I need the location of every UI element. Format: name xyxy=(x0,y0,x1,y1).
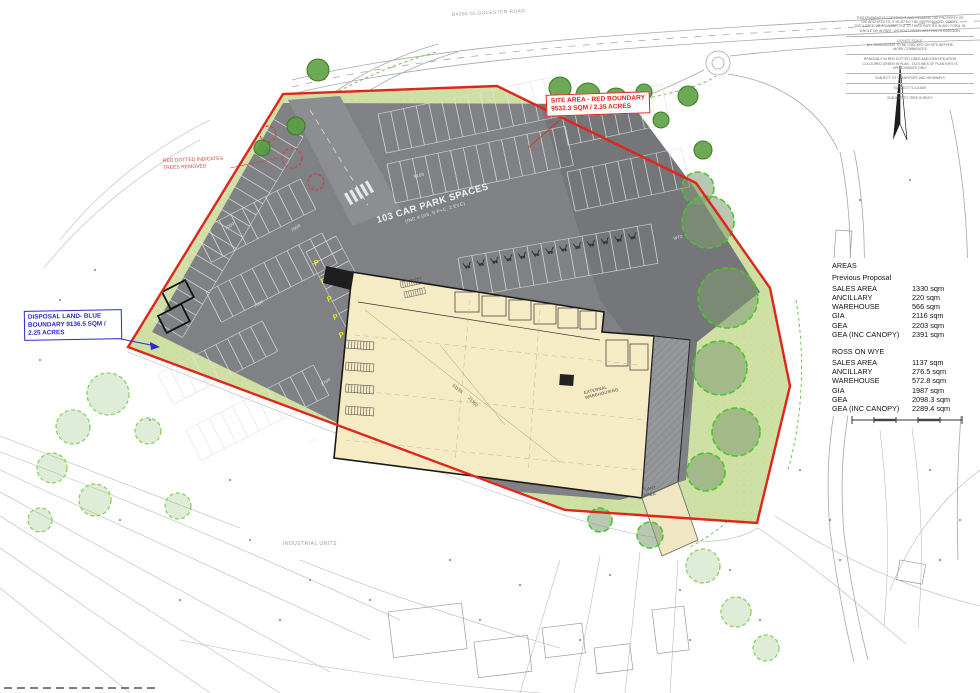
areas-section-heading: Previous Proposal xyxy=(832,273,974,282)
scale-bar xyxy=(852,416,962,424)
areas-title: AREAS xyxy=(832,261,974,270)
site-plan-sheet: P P P P P P 7000 7000 7000 2700 6100 700… xyxy=(0,0,980,693)
table-row: SALES AREA1137 sqm xyxy=(832,358,974,367)
note-group: DO NOT SCALEALL DIMENSIONS TO BE CHECKED… xyxy=(846,37,974,56)
table-row: ANCILLARY220 sqm xyxy=(832,293,974,302)
industrial-units-label: INDUSTRIAL UNITS xyxy=(283,541,337,547)
disposal-land-annotation: DISPOSAL LAND- BLUE BOUNDARY 9136.5 SQM … xyxy=(24,309,123,341)
table-row: GEA (INC CANOPY)2289.4 sqm xyxy=(832,404,974,413)
areas-schedule: AREAS Previous Proposal SALES AREA1330 s… xyxy=(828,258,978,416)
disposal-line3: 2.25 ACRES xyxy=(28,328,118,338)
table-row: GEA (INC CANOPY)2391 sqm xyxy=(832,330,974,339)
table-row: WAREHOUSE566 sqm xyxy=(832,302,974,311)
table-row: GIA2116 sqm xyxy=(832,311,974,320)
plant-area-label: PLANT AREA xyxy=(641,485,657,498)
note-group: THIS DRAWING IS COPYRIGHT AND REMAINS TH… xyxy=(846,14,974,37)
table-row: GEA2203 sqm xyxy=(832,321,974,330)
note-group: SUBJECT TO LEASE xyxy=(846,84,974,94)
trees-removed-note: RED DOTTED INDICATES TREES REMOVED xyxy=(163,156,224,171)
note-group: REMOVALS IN RED DOTTED LINES AND IDENTIF… xyxy=(846,55,974,74)
areas-section-heading: ROSS ON WYE xyxy=(832,347,974,356)
table-row: SALES AREA1330 sqm xyxy=(832,284,974,293)
note-group: SUBJECT TO TREE SURVEY xyxy=(846,94,974,103)
table-row: GEA2098.3 sqm xyxy=(832,395,974,404)
dock-leveller xyxy=(559,374,574,386)
table-row: WAREHOUSE572.8 sqm xyxy=(832,376,974,385)
disposal-line2: BOUNDARY 9136.5 SQM / xyxy=(28,320,118,330)
drawing-notes: THIS DRAWING IS COPYRIGHT AND REMAINS TH… xyxy=(846,14,974,104)
svg-text:7000: 7000 xyxy=(306,437,318,447)
table-row: ANCILLARY276.5 sqm xyxy=(832,367,974,376)
note-group: SUBJECT TO TRANSPORT AND HIGHWAYS xyxy=(846,74,974,84)
table-row: GIA1987 sqm xyxy=(832,386,974,395)
site-area-annotation: SITE AREA - RED BOUNDARY 9532.3 SQM / 2.… xyxy=(546,91,651,117)
